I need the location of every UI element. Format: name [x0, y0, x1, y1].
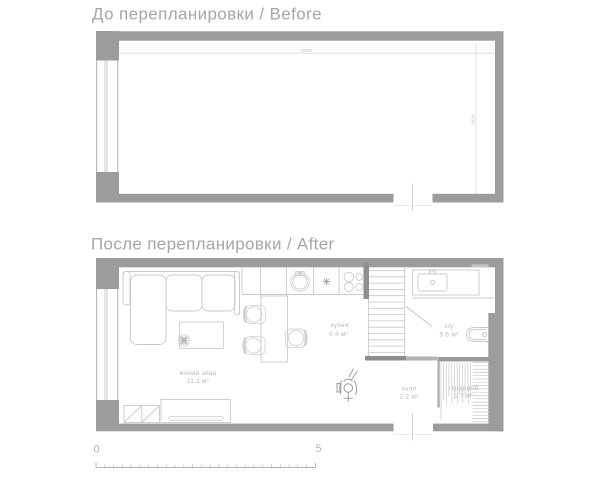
svg-text:5: 5: [315, 443, 321, 455]
svg-text:с/у: с/у: [444, 323, 454, 330]
svg-text:11.2 м²: 11.2 м²: [187, 378, 210, 385]
svg-text:кухня: кухня: [331, 322, 349, 329]
svg-text:жилая зона: жилая зона: [180, 370, 217, 377]
svg-text:гардероб: гардероб: [449, 384, 479, 392]
svg-text:5.6 м²: 5.6 м²: [440, 332, 460, 339]
svg-text:До перепланировки / Before: До перепланировки / Before: [92, 5, 322, 24]
svg-text:После перепланировки / After: После перепланировки / After: [91, 235, 335, 254]
svg-text:1.7 м²: 1.7 м²: [454, 393, 474, 400]
svg-text:холл: холл: [401, 386, 416, 393]
svg-text:0.4 м²: 0.4 м²: [329, 331, 349, 338]
svg-text:2.2 м²: 2.2 м²: [400, 394, 420, 401]
svg-text:6005: 6005: [301, 48, 312, 54]
svg-text:2620: 2620: [471, 114, 477, 125]
svg-text:0: 0: [93, 444, 99, 456]
